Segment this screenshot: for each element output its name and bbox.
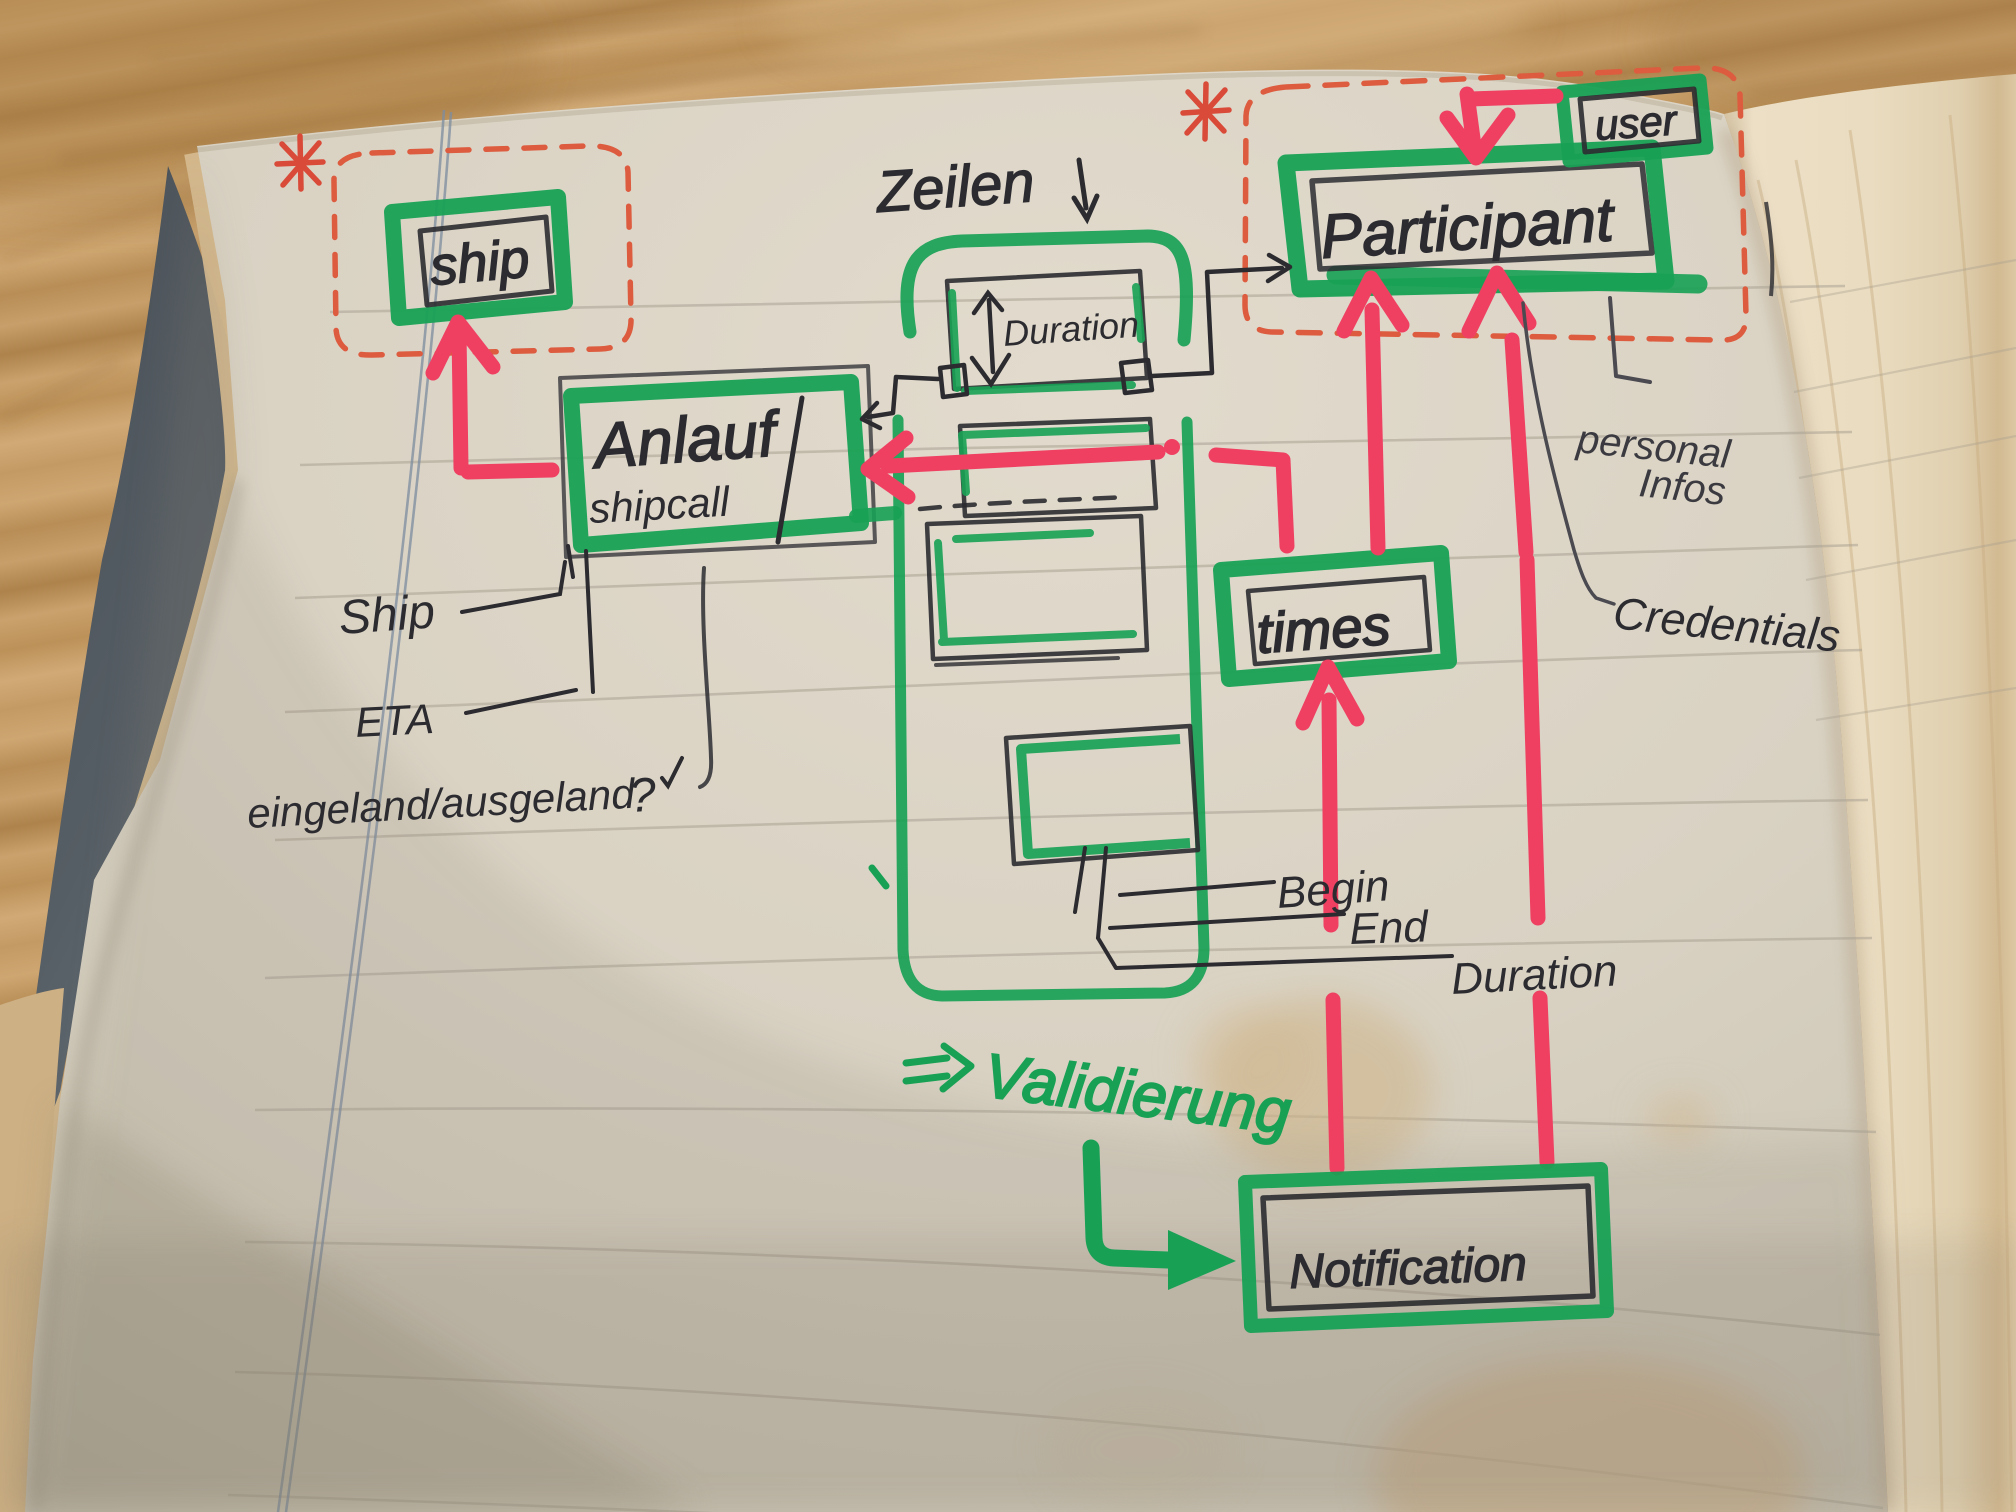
svg-text:times: times (1254, 593, 1392, 665)
svg-text:Zeilen: Zeilen (872, 149, 1036, 225)
svg-text:Notification: Notification (1289, 1238, 1528, 1299)
svg-text:Infos: Infos (1637, 461, 1728, 514)
svg-text:ship: ship (428, 229, 532, 297)
svg-text:Duration: Duration (1450, 946, 1619, 1004)
svg-text:shipcall: shipcall (588, 478, 732, 532)
svg-text:user: user (1593, 96, 1680, 149)
svg-text:End: End (1349, 902, 1430, 954)
svg-text:ETA: ETA (354, 695, 435, 746)
svg-text:Ship: Ship (337, 585, 437, 645)
svg-text:Anlauf: Anlauf (588, 397, 784, 482)
svg-text:?: ? (628, 769, 658, 823)
